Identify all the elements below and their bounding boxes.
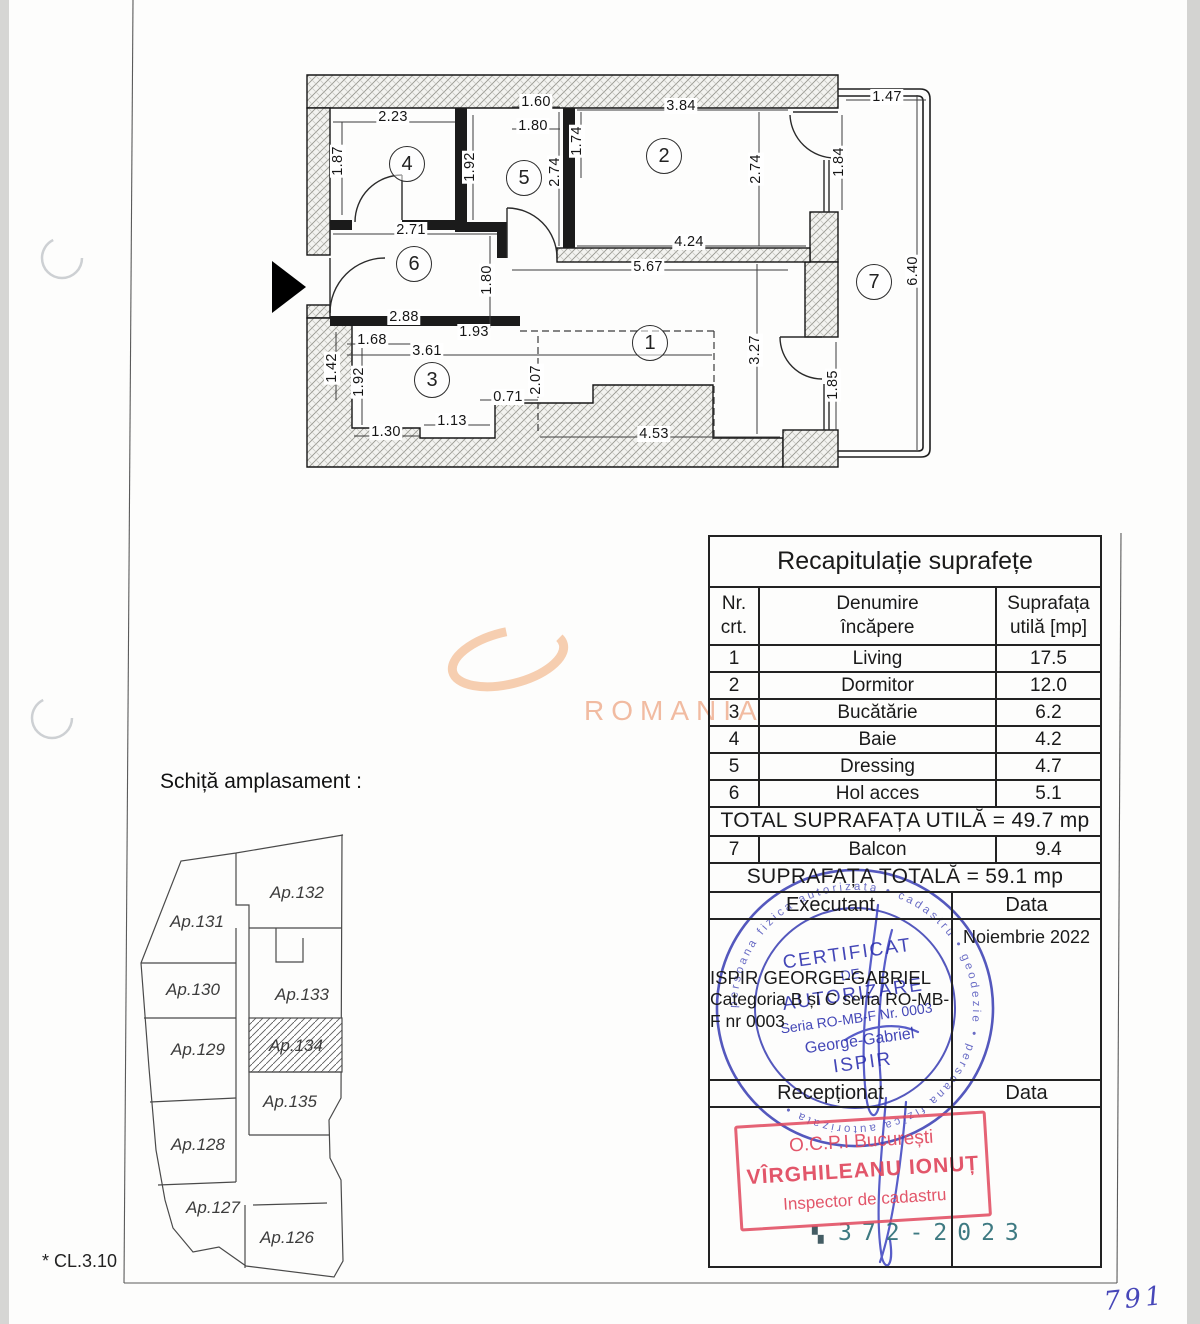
- dimension-label: 2.88: [387, 309, 420, 325]
- total-util-row: TOTAL SUPRAFAȚA UTILĂ = 49.7 mp: [710, 808, 1100, 835]
- table-cell: 5.1: [997, 781, 1100, 806]
- table-cell: 4.7: [997, 754, 1100, 779]
- apartment-label: Ap.131: [170, 912, 224, 932]
- apartment-label: Ap.134: [269, 1036, 323, 1056]
- dimension-label: 5.67: [631, 259, 664, 275]
- room-number: 3: [414, 362, 450, 398]
- dimension-label: 2.23: [376, 109, 409, 125]
- dimension-label: 1.47: [870, 89, 903, 105]
- dimension-label: 4.24: [672, 234, 705, 250]
- dimension-label: 1.13: [435, 413, 468, 429]
- table-cell: 4: [710, 727, 760, 752]
- table-cell: 2: [710, 673, 760, 698]
- dimension-label: 1.92: [351, 365, 367, 398]
- dimension-label: 2.74: [748, 152, 764, 185]
- dimension-label: 6.40: [905, 254, 921, 287]
- dimension-label: 3.61: [410, 343, 443, 359]
- room-number: 4: [389, 146, 425, 182]
- dimension-label: 3.27: [747, 333, 763, 366]
- dimension-label: 1.93: [457, 324, 490, 340]
- date-value: Noiembrie 2022: [953, 920, 1100, 1079]
- table-cell: Living: [760, 646, 997, 671]
- site-sketch-title: Schiță amplasament :: [160, 770, 362, 794]
- data-header: Data: [953, 1081, 1100, 1106]
- table-cell: 6.2: [997, 700, 1100, 725]
- footnote: * CL.3.10: [42, 1251, 117, 1272]
- table-cell: 5: [710, 754, 760, 779]
- table-cell: Bucătărie: [760, 700, 997, 725]
- table-cell: 12.0: [997, 673, 1100, 698]
- table-title: Recapitulație suprafețe: [710, 537, 1100, 586]
- table-cell: 6: [710, 781, 760, 806]
- entrance-arrow-icon: [272, 261, 306, 313]
- room-number: 7: [856, 264, 892, 300]
- room-number: 6: [396, 246, 432, 282]
- table-cell: 3: [710, 700, 760, 725]
- dimension-label: 4.53: [637, 426, 670, 442]
- dimension-label: 0.71: [491, 389, 524, 405]
- column-header: Suprafațautilă [mp]: [997, 588, 1100, 644]
- data-header: Data: [953, 893, 1100, 918]
- apartment-label: Ap.132: [270, 883, 324, 903]
- table-cell: Baie: [760, 727, 997, 752]
- table-cell: 1: [710, 646, 760, 671]
- surface-table: Recapitulație suprafețeNr.crt.Denumireîn…: [708, 535, 1102, 1268]
- dimension-label: 2.07: [528, 363, 544, 396]
- dimension-label: 2.74: [547, 155, 563, 188]
- dimension-label: 1.87: [330, 144, 346, 177]
- hole-punch-icon: [32, 238, 82, 738]
- column-header: Nr.crt.: [710, 588, 760, 644]
- dimension-label: 1.42: [324, 351, 340, 384]
- table-cell: 4.2: [997, 727, 1100, 752]
- apartment-label: Ap.135: [263, 1092, 317, 1112]
- table-cell: Balcon: [760, 837, 997, 862]
- dimension-label: 1.74: [569, 124, 585, 157]
- table-cell: Dormitor: [760, 673, 997, 698]
- table-cell: 17.5: [997, 646, 1100, 671]
- receptionat-header: Recepționat: [710, 1081, 953, 1106]
- dimension-label: 1.30: [369, 424, 402, 440]
- apartment-label: Ap.126: [260, 1228, 314, 1248]
- scanned-document-page: { "page": { "footnote": "* CL.3.10", "pa…: [0, 0, 1200, 1324]
- apartment-label: Ap.130: [166, 980, 220, 1000]
- dimension-label: 1.68: [355, 332, 388, 348]
- table-cell: [953, 1108, 1100, 1266]
- dimension-label: 1.80: [479, 263, 495, 296]
- dimension-label: 1.84: [831, 145, 847, 178]
- dimension-label: 1.60: [519, 94, 552, 110]
- dimension-label: 1.92: [462, 150, 478, 183]
- apartment-label: Ap.128: [171, 1135, 225, 1155]
- dimension-label: 1.80: [516, 118, 549, 134]
- page-number-handwritten: 791: [1103, 1281, 1167, 1317]
- executant-info: ISPIR GEORGE-GABRIELCategoria B și C ser…: [710, 920, 953, 1079]
- executant-header: Executant: [710, 893, 953, 918]
- table-cell: Hol acces: [760, 781, 997, 806]
- dimension-label: 1.85: [825, 368, 841, 401]
- floor-plan: [272, 75, 930, 467]
- table-cell: 9.4: [997, 837, 1100, 862]
- watermark-swoosh-icon: [446, 619, 569, 697]
- room-number: 5: [506, 160, 542, 196]
- dimension-label: 2.71: [394, 222, 427, 238]
- total-all-row: SUPRAFAȚA TOTALĂ = 59.1 mp: [710, 864, 1100, 891]
- room-number: 1: [632, 325, 668, 361]
- table-cell: 7: [710, 837, 760, 862]
- table-cell: [710, 1108, 953, 1266]
- dimension-label: 3.84: [664, 98, 697, 114]
- apartment-label: Ap.133: [275, 985, 329, 1005]
- table-cell: Dressing: [760, 754, 997, 779]
- column-header: Denumireîncăpere: [760, 588, 997, 644]
- apartment-label: Ap.127: [186, 1198, 240, 1218]
- apartment-label: Ap.129: [171, 1040, 225, 1060]
- room-number: 2: [646, 138, 682, 174]
